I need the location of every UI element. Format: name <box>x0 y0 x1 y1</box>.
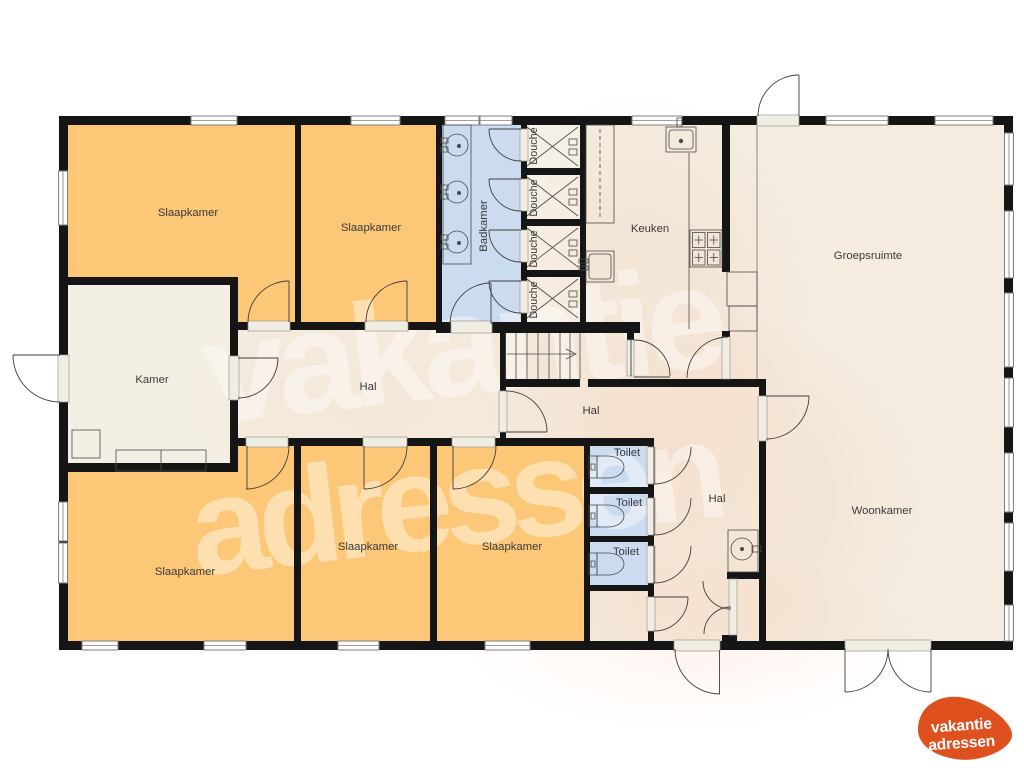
svg-text:Badkamer: Badkamer <box>478 200 490 252</box>
svg-text:Kamer: Kamer <box>135 374 169 386</box>
svg-text:Toilet: Toilet <box>613 546 640 558</box>
svg-text:Hal: Hal <box>709 493 726 505</box>
svg-text:Keuken: Keuken <box>631 223 669 235</box>
svg-text:Douche: Douche <box>528 230 540 267</box>
svg-text:Slaapkamer: Slaapkamer <box>158 207 219 219</box>
svg-text:Hal: Hal <box>583 405 600 417</box>
svg-text:Groepsruimte: Groepsruimte <box>834 250 902 262</box>
svg-text:Hal: Hal <box>360 381 377 393</box>
svg-text:Slaapkamer: Slaapkamer <box>341 222 402 234</box>
svg-text:Douche: Douche <box>528 281 540 318</box>
svg-text:Douche: Douche <box>528 179 540 216</box>
svg-text:Slaapkamer: Slaapkamer <box>338 541 399 553</box>
svg-text:Toilet: Toilet <box>616 497 643 509</box>
svg-text:Douche: Douche <box>528 127 540 164</box>
svg-text:Woonkamer: Woonkamer <box>852 505 913 517</box>
svg-text:Slaapkamer: Slaapkamer <box>482 541 543 553</box>
svg-text:Slaapkamer: Slaapkamer <box>155 566 216 578</box>
svg-text:Toilet: Toilet <box>614 447 641 459</box>
